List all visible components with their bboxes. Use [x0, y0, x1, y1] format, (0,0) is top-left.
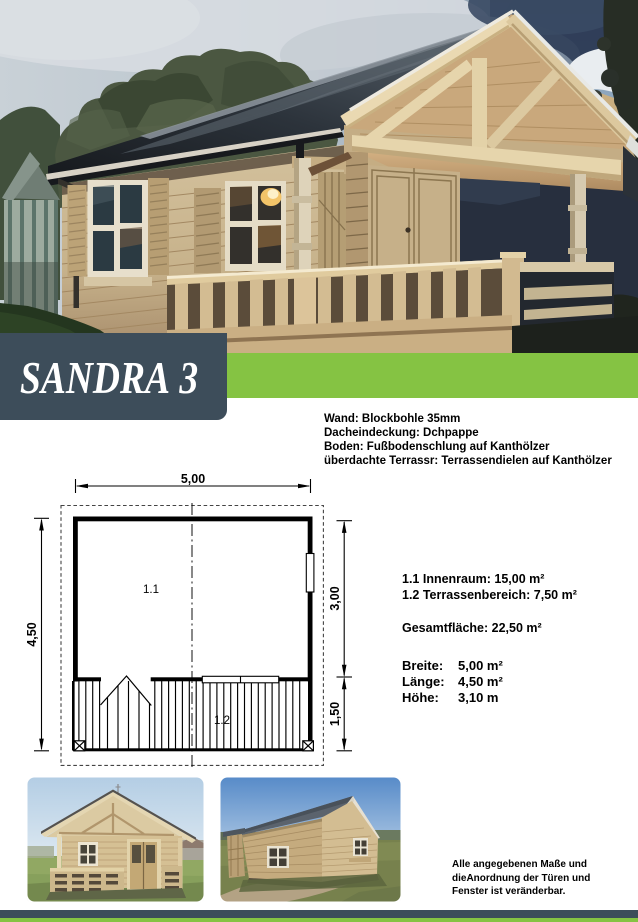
svg-text:5,00: 5,00	[181, 472, 205, 486]
svg-text:1,50: 1,50	[328, 702, 342, 726]
svg-text:1.2: 1.2	[214, 715, 230, 727]
svg-text:1.1: 1.1	[143, 584, 159, 596]
svg-text:3,00: 3,00	[328, 586, 342, 610]
svg-text:4,50: 4,50	[25, 622, 39, 646]
